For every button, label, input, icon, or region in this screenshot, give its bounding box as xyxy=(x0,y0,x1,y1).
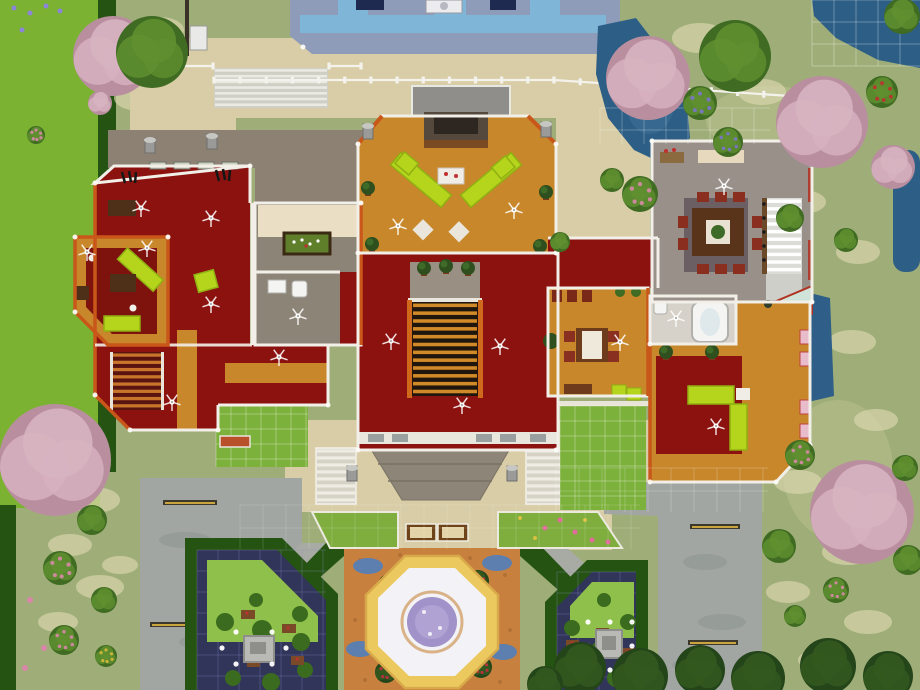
window-pane xyxy=(530,434,546,442)
flower-red xyxy=(246,612,249,615)
bush-pink-flowers[interactable] xyxy=(630,186,634,190)
flower-bed[interactable] xyxy=(291,656,304,665)
garden-light[interactable] xyxy=(269,629,274,634)
bush-pink-flowers[interactable] xyxy=(834,581,837,584)
bush-pink-flowers[interactable] xyxy=(829,585,832,588)
bush[interactable] xyxy=(83,506,102,525)
deck-light xyxy=(301,45,306,50)
chair-red[interactable] xyxy=(733,264,745,274)
bush-purple-flowers[interactable] xyxy=(707,106,711,110)
steps-nw-treads xyxy=(215,92,327,95)
bush-purple-flowers[interactable] xyxy=(728,148,732,152)
stair-rail-orange xyxy=(407,300,412,398)
garden-light[interactable] xyxy=(629,643,634,648)
garden-light[interactable] xyxy=(219,645,224,650)
fence-pool[interactable] xyxy=(395,77,398,84)
bush-pink-flowers[interactable] xyxy=(58,645,62,649)
stairs-west-wing-treads xyxy=(113,390,161,393)
stairs-east-wing-treads xyxy=(767,238,801,241)
pool-table[interactable] xyxy=(284,233,330,254)
stairs-entry-east-treads xyxy=(527,484,565,487)
grand-staircase-treads xyxy=(413,358,477,362)
amber-strip xyxy=(225,363,328,383)
chair-red[interactable] xyxy=(608,331,619,342)
bush[interactable] xyxy=(554,233,566,245)
chair-red[interactable] xyxy=(715,192,727,202)
bush-pink-flowers[interactable] xyxy=(32,137,35,140)
bush-pink-flowers[interactable] xyxy=(640,201,644,205)
fence-pool[interactable] xyxy=(212,77,215,84)
wall-posts xyxy=(356,448,361,453)
bush-purple-flowers[interactable] xyxy=(734,145,738,149)
shrub[interactable] xyxy=(564,620,580,636)
bush-pink-flowers[interactable] xyxy=(64,646,68,650)
bush-pink-flowers[interactable] xyxy=(30,131,33,134)
rose-bush[interactable] xyxy=(485,663,488,666)
chair-red[interactable] xyxy=(715,264,727,274)
fountain-sparkle xyxy=(428,632,432,636)
landing-rail xyxy=(408,298,482,302)
fireplace-inner xyxy=(434,116,478,134)
family-rug xyxy=(656,356,742,454)
grand-staircase-treads xyxy=(413,311,477,315)
pool-ball-red xyxy=(304,244,307,247)
bush-pink-flowers[interactable] xyxy=(50,561,54,565)
potted-plant[interactable] xyxy=(707,347,714,354)
wall-posts xyxy=(359,201,364,206)
bush-pink-flowers[interactable] xyxy=(798,445,802,449)
chair-red[interactable] xyxy=(697,192,709,202)
bush-pink-flowers[interactable] xyxy=(842,592,845,595)
bush-pink-flowers[interactable] xyxy=(70,643,74,647)
window-pane xyxy=(368,434,384,442)
bush-pink-flowers[interactable] xyxy=(647,188,651,192)
chandelier[interactable] xyxy=(397,225,399,227)
stairs-east-wing-treads xyxy=(767,245,801,248)
chair-red[interactable] xyxy=(678,216,688,228)
fence-pool[interactable] xyxy=(422,77,425,84)
garden-light[interactable] xyxy=(607,619,612,624)
coffee-table-wood[interactable] xyxy=(110,274,136,292)
shrub[interactable] xyxy=(249,593,263,607)
stone-patch xyxy=(844,610,892,634)
bush[interactable] xyxy=(789,606,803,620)
chair-dark[interactable] xyxy=(582,290,592,302)
sideboard[interactable] xyxy=(564,384,592,394)
shrub[interactable] xyxy=(225,670,241,686)
fountain-sparkle xyxy=(438,626,442,630)
courtyard-east-edge xyxy=(556,401,650,406)
wall-posts xyxy=(554,448,559,453)
potted-plant[interactable] xyxy=(419,263,426,270)
coffee-table-white[interactable] xyxy=(438,168,464,184)
bush-pink-flowers[interactable] xyxy=(632,199,636,203)
flowers-pink xyxy=(590,538,595,543)
bush-pink-flowers[interactable] xyxy=(70,635,74,639)
bush-pink-flowers[interactable] xyxy=(55,634,59,638)
bush-yellow-flowers[interactable] xyxy=(106,660,109,663)
grand-staircase-treads xyxy=(413,374,477,378)
chandelier[interactable] xyxy=(723,185,725,187)
steps-nw-treads xyxy=(215,69,327,72)
garden-light[interactable] xyxy=(629,619,634,624)
cherry-tree[interactable] xyxy=(832,464,896,528)
window-pane xyxy=(476,434,492,442)
bush-pink-flowers[interactable] xyxy=(66,563,70,567)
stairs-west-wing-treads xyxy=(113,353,161,356)
side-table-white[interactable] xyxy=(736,388,750,400)
console-table[interactable] xyxy=(660,152,684,163)
fence-pool[interactable] xyxy=(448,77,451,84)
bush-pink-flowers[interactable] xyxy=(831,594,834,597)
chair-lime[interactable] xyxy=(627,388,641,400)
grand-staircase-treads xyxy=(413,343,477,347)
green-tree[interactable] xyxy=(131,19,176,64)
flowers-yellow xyxy=(533,536,537,540)
courtyard-east xyxy=(560,406,646,510)
chair-red[interactable] xyxy=(564,351,575,362)
rose-bush[interactable] xyxy=(381,675,384,678)
pool-balls xyxy=(308,242,311,245)
lawn-flowers xyxy=(20,28,25,33)
bush-pink-flowers[interactable] xyxy=(806,458,810,462)
flower-red xyxy=(296,658,299,661)
gravel-speckle xyxy=(353,618,357,622)
potted-plant[interactable] xyxy=(535,241,542,248)
stair-balusters xyxy=(762,258,766,262)
fence-pool[interactable] xyxy=(579,78,582,85)
lawn-flowers xyxy=(44,4,49,9)
porch-lamp[interactable] xyxy=(346,465,358,471)
garden-statue-west-top xyxy=(250,642,266,654)
chandelier[interactable] xyxy=(210,303,212,305)
chandelier[interactable] xyxy=(86,251,88,253)
bush-pink-flowers[interactable] xyxy=(800,461,804,465)
berry-bush[interactable] xyxy=(873,85,877,89)
garden-light[interactable] xyxy=(283,645,288,650)
fence-nw-right[interactable] xyxy=(359,63,362,70)
bush-yellow-flowers[interactable] xyxy=(101,659,104,662)
cherry-tree[interactable] xyxy=(796,80,853,137)
table-decor-red xyxy=(444,172,448,176)
forest-tree[interactable] xyxy=(535,667,557,689)
wall-posts xyxy=(554,142,559,147)
terrace-statue[interactable] xyxy=(540,121,552,127)
potted-plant[interactable] xyxy=(661,347,668,354)
bush-purple-flowers[interactable] xyxy=(700,109,704,113)
shrub[interactable] xyxy=(216,613,234,631)
side-table-wood[interactable] xyxy=(76,286,89,300)
stairs-entry-east-treads xyxy=(527,491,565,494)
flowers-pink xyxy=(22,665,28,671)
bush-yellow-flowers[interactable] xyxy=(104,648,107,651)
fence-pool[interactable] xyxy=(343,77,346,84)
spa-tub[interactable] xyxy=(490,0,516,10)
bush-pink-flowers[interactable] xyxy=(53,573,57,577)
stairs-entry-east-treads xyxy=(527,477,565,480)
grand-staircase-treads xyxy=(413,327,477,331)
chair-red[interactable] xyxy=(697,264,709,274)
bush-pink-flowers[interactable] xyxy=(791,449,795,453)
bush-purple-flowers[interactable] xyxy=(722,147,726,151)
bush-pink-flowers[interactable] xyxy=(62,630,66,634)
berry-bush[interactable] xyxy=(875,97,879,101)
bush-pink-flowers[interactable] xyxy=(806,450,810,454)
chandelier[interactable] xyxy=(461,404,463,406)
fence-nw-left[interactable] xyxy=(211,63,214,70)
wall-posts xyxy=(356,142,361,147)
sofa-lime[interactable] xyxy=(104,316,140,331)
drive-stain xyxy=(683,554,727,570)
hedge-row-sw[interactable] xyxy=(0,505,16,690)
stairs-west-wing-treads xyxy=(113,382,161,385)
chandelier[interactable] xyxy=(619,341,621,343)
stone-patch xyxy=(102,556,138,574)
bush[interactable] xyxy=(899,546,918,565)
grand-staircase-treads xyxy=(413,390,477,394)
bush[interactable] xyxy=(898,456,914,472)
fence-pool[interactable] xyxy=(239,77,242,84)
grand-staircase-treads xyxy=(413,382,477,386)
bush-pink-flowers[interactable] xyxy=(60,574,64,578)
chandelier[interactable] xyxy=(513,209,515,211)
chandelier[interactable] xyxy=(171,401,173,403)
bush[interactable] xyxy=(605,169,620,184)
terrace-statue[interactable] xyxy=(144,137,156,143)
stairs-east-wing-treads xyxy=(767,253,801,256)
fence-pool[interactable] xyxy=(474,77,477,84)
stair-balusters xyxy=(762,202,766,206)
flower-bed[interactable] xyxy=(241,610,255,619)
forest-tree[interactable] xyxy=(743,653,776,686)
chair-red[interactable] xyxy=(678,238,688,250)
chandelier[interactable] xyxy=(297,315,299,317)
stairs-west-wing-treads xyxy=(113,361,161,364)
gravel-speckle xyxy=(503,573,507,577)
fence-pool[interactable] xyxy=(552,77,555,84)
fence-pool[interactable] xyxy=(291,77,294,84)
fence-nw-right[interactable] xyxy=(327,63,330,70)
sofa-lime[interactable] xyxy=(730,404,747,450)
bush-pink-flowers[interactable] xyxy=(648,197,652,201)
fence-pool[interactable] xyxy=(369,77,372,84)
potted-plant[interactable] xyxy=(367,239,374,246)
bush-purple-flowers[interactable] xyxy=(698,92,702,96)
shrub[interactable] xyxy=(292,606,308,622)
bush-pink-flowers[interactable] xyxy=(39,136,42,139)
sink[interactable] xyxy=(268,280,286,293)
bush[interactable] xyxy=(782,205,799,222)
cherry-bush[interactable] xyxy=(880,147,907,174)
fence-pool[interactable] xyxy=(317,77,320,84)
bush-pink-flowers[interactable] xyxy=(794,460,798,464)
fence-pool[interactable] xyxy=(526,77,529,84)
stair-rail-dark xyxy=(762,198,767,274)
bush-pink-flowers[interactable] xyxy=(58,557,62,561)
bush[interactable] xyxy=(769,530,790,551)
forest-tree[interactable] xyxy=(686,647,717,678)
stair-rail-orange xyxy=(478,300,483,398)
porch-lamp[interactable] xyxy=(506,465,518,471)
bush-pink-flowers[interactable] xyxy=(34,128,37,131)
pool-fountain-bowl xyxy=(440,2,448,10)
garden-light[interactable] xyxy=(233,629,238,634)
flower-patch-blue[interactable] xyxy=(482,555,512,571)
scene-svg[interactable] xyxy=(0,0,920,690)
wall-posts xyxy=(774,480,779,485)
bush-pink-flowers[interactable] xyxy=(638,182,642,186)
lawn-flowers xyxy=(12,6,17,11)
cherry-tree[interactable] xyxy=(23,408,92,477)
wall-posts xyxy=(128,428,133,433)
stairs-east-wing-treads xyxy=(767,268,801,271)
bush-yellow-flowers[interactable] xyxy=(99,651,102,654)
wall-posts xyxy=(356,251,361,256)
courtyard-west xyxy=(216,399,308,467)
speed-bump-stripe xyxy=(692,526,738,528)
fence-pool[interactable] xyxy=(762,91,765,98)
speed-bump-stripe xyxy=(165,502,215,504)
garden-light[interactable] xyxy=(233,661,238,666)
garden-light[interactable] xyxy=(269,661,274,666)
potted-plant[interactable] xyxy=(441,261,448,268)
spa-tub[interactable] xyxy=(356,0,384,10)
flowers-pink xyxy=(27,597,33,603)
bush[interactable] xyxy=(839,229,854,244)
chair-red[interactable] xyxy=(752,216,762,228)
bush-purple-flowers[interactable] xyxy=(726,132,730,136)
chair-red[interactable] xyxy=(733,192,745,202)
rose-bush[interactable] xyxy=(485,669,488,672)
bathtub-water xyxy=(700,308,720,336)
grand-staircase-treads xyxy=(413,304,477,308)
stairs-west-wing-treads xyxy=(113,404,161,407)
cherry-bush[interactable] xyxy=(93,92,108,107)
fence-pool[interactable] xyxy=(500,77,503,84)
dresser[interactable] xyxy=(108,200,136,216)
forest-tree[interactable] xyxy=(874,653,905,684)
bush-purple-flowers[interactable] xyxy=(719,136,723,140)
fireplace-hearth xyxy=(424,140,488,148)
potted-plant[interactable] xyxy=(363,183,370,190)
chandelier[interactable] xyxy=(675,317,677,319)
stairs-entry-west-treads xyxy=(317,449,355,452)
path-box[interactable] xyxy=(190,26,207,50)
chandelier[interactable] xyxy=(390,340,392,342)
garden-light[interactable] xyxy=(585,619,590,624)
shrub[interactable] xyxy=(292,633,310,651)
bush-pink-flowers[interactable] xyxy=(841,586,844,589)
garden-light[interactable] xyxy=(607,667,612,672)
berry-bush[interactable] xyxy=(888,87,892,91)
bush[interactable] xyxy=(97,588,113,604)
stair-balusters xyxy=(762,216,766,220)
wall-posts xyxy=(73,235,78,240)
bush-purple-flowers[interactable] xyxy=(734,137,738,141)
bush-purple-flowers[interactable] xyxy=(706,98,710,102)
stairs-entry-west-treads xyxy=(317,498,355,501)
stairs-entry-west-treads xyxy=(317,456,355,459)
chandelier[interactable] xyxy=(210,217,212,219)
speed-bump-stripe xyxy=(690,642,736,644)
stairs-west-wing-treads xyxy=(113,397,161,400)
terrace-statue[interactable] xyxy=(362,123,374,129)
cherry-tree[interactable] xyxy=(624,39,676,91)
chandelier[interactable] xyxy=(140,207,142,209)
terrace-statue[interactable] xyxy=(206,133,218,139)
chair-red[interactable] xyxy=(564,331,575,342)
bush-yellow-flowers[interactable] xyxy=(110,652,113,655)
stairs-entry-east-treads xyxy=(527,470,565,473)
fountain-sparkle xyxy=(422,610,426,614)
stairs-entry-east-treads xyxy=(527,498,565,501)
bush-purple-flowers[interactable] xyxy=(693,108,697,112)
forest-tree[interactable] xyxy=(624,650,659,685)
chair-red[interactable] xyxy=(608,351,619,362)
potted-plant[interactable] xyxy=(541,187,548,194)
flower-patch-blue[interactable] xyxy=(353,558,383,574)
stairs-entry-east-treads xyxy=(527,463,565,466)
green-tree[interactable] xyxy=(714,23,759,68)
pool-balls xyxy=(300,238,303,241)
chandelier[interactable] xyxy=(278,356,280,358)
bush-yellow-flowers[interactable] xyxy=(110,658,113,661)
chair-dark[interactable] xyxy=(567,290,577,302)
bush-pink-flowers[interactable] xyxy=(67,571,71,575)
chandelier[interactable] xyxy=(715,425,717,427)
stair-balusters xyxy=(762,244,766,248)
table-centerpiece[interactable] xyxy=(711,225,725,239)
berry-bush[interactable] xyxy=(889,95,893,99)
wall-posts xyxy=(166,235,171,240)
fountain-water-light xyxy=(415,605,449,639)
gravel-speckle xyxy=(508,628,512,632)
forest-tree[interactable] xyxy=(565,644,597,676)
fence-pool[interactable] xyxy=(265,77,268,84)
rose-bush[interactable] xyxy=(481,671,484,674)
chandelier[interactable] xyxy=(499,345,501,347)
grand-staircase-treads xyxy=(413,319,477,323)
rose-bush[interactable] xyxy=(386,676,389,679)
table-runner xyxy=(582,331,602,359)
rose-bush[interactable] xyxy=(379,667,382,670)
green-tree[interactable] xyxy=(892,0,914,22)
berry-bush[interactable] xyxy=(882,98,886,102)
bush-purple-flowers[interactable] xyxy=(690,96,694,100)
stair-rail xyxy=(110,352,113,410)
bush-pink-flowers[interactable] xyxy=(39,132,42,135)
garden-bench[interactable] xyxy=(442,527,464,538)
pool-balls xyxy=(292,240,295,243)
pool-channel xyxy=(530,0,560,18)
berry-bush[interactable] xyxy=(880,81,884,85)
potted-plant[interactable] xyxy=(463,263,470,270)
bush-pink-flowers[interactable] xyxy=(35,138,38,141)
shrub[interactable] xyxy=(597,593,611,607)
steps-nw-treads xyxy=(215,98,327,101)
bush-pink-flowers[interactable] xyxy=(836,595,839,598)
forest-tree[interactable] xyxy=(812,640,847,675)
game-viewport[interactable] xyxy=(0,0,920,690)
steps-nw-treads xyxy=(215,86,327,89)
sofa-lime[interactable] xyxy=(688,386,734,404)
toilet[interactable] xyxy=(292,281,307,297)
garden-bench[interactable] xyxy=(410,527,432,538)
chandelier[interactable] xyxy=(146,247,148,249)
hall-west-strip xyxy=(340,272,358,345)
chair-red[interactable] xyxy=(752,238,762,250)
courtyard-planter[interactable] xyxy=(220,436,250,447)
